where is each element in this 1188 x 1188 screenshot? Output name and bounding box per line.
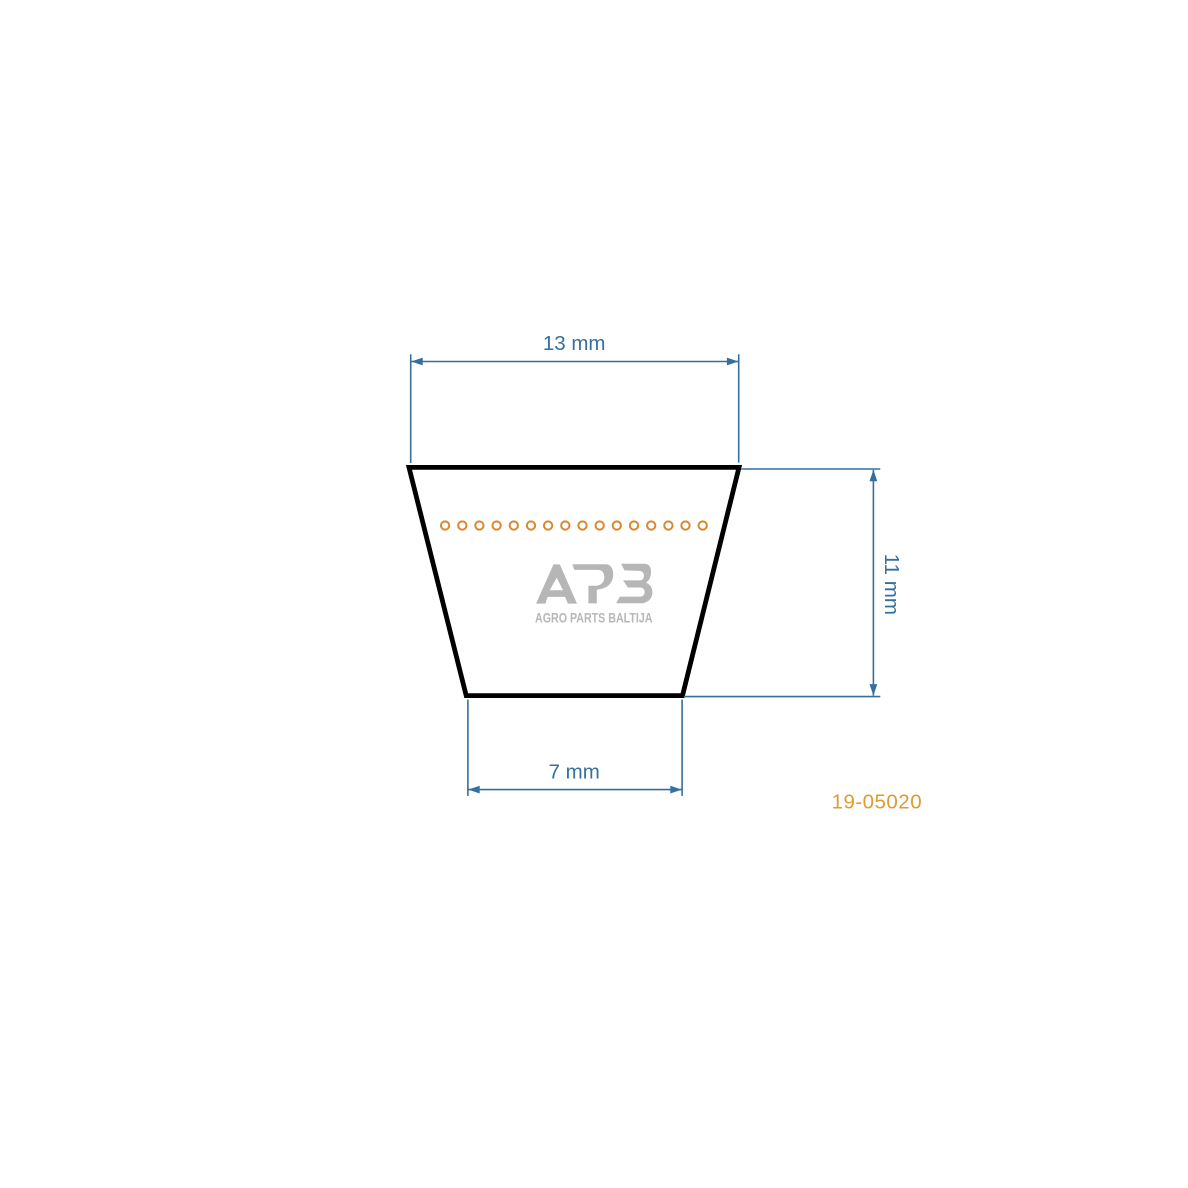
- svg-text:13 mm: 13 mm: [543, 332, 606, 355]
- svg-text:11 mm: 11 mm: [880, 554, 903, 615]
- svg-text:7 mm: 7 mm: [549, 761, 600, 784]
- svg-text:AGRO PARTS BALTIJA: AGRO PARTS BALTIJA: [535, 611, 653, 626]
- svg-text:19-05020: 19-05020: [832, 790, 922, 813]
